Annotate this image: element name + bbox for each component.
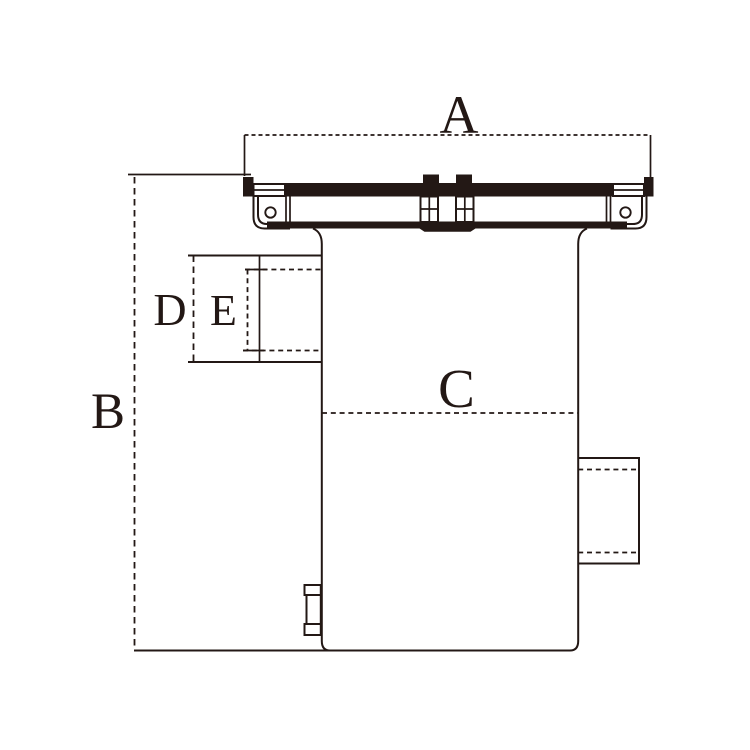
dimension-a: A — [245, 85, 651, 177]
dim-d-label: D — [153, 284, 186, 335]
diagram-canvas: A B — [0, 0, 750, 750]
dim-e-label: E — [210, 286, 237, 335]
clamp-top-band — [305, 585, 321, 595]
bracket-left-hole — [265, 207, 275, 217]
flange-center-tab-right — [456, 175, 472, 185]
flange-grate-assembly — [243, 175, 654, 232]
left-inlet-socket: D E — [153, 256, 321, 363]
dimension-c: C — [322, 358, 578, 419]
dimension-drawing: A B — [0, 0, 750, 750]
bracket-right-hole — [620, 207, 630, 217]
flange-bottom-bar — [267, 222, 627, 229]
flange-left-step — [243, 177, 254, 197]
bottom-clamp-detail — [305, 585, 321, 635]
body-right-wall — [570, 229, 587, 651]
flange-center-tab-left — [423, 175, 439, 185]
clamp-middle-block — [307, 595, 321, 624]
dim-c-label: C — [438, 358, 475, 419]
right-outlet-socket — [578, 458, 639, 564]
clamp-bottom-band — [305, 624, 321, 635]
flange-top-band — [284, 183, 614, 197]
dim-b-label: B — [91, 384, 125, 440]
outlet-outline — [578, 458, 639, 564]
dimension-b: B — [91, 175, 251, 651]
flange-right-step — [644, 177, 654, 197]
body-outline — [134, 229, 587, 651]
dim-a-label: A — [440, 85, 479, 145]
